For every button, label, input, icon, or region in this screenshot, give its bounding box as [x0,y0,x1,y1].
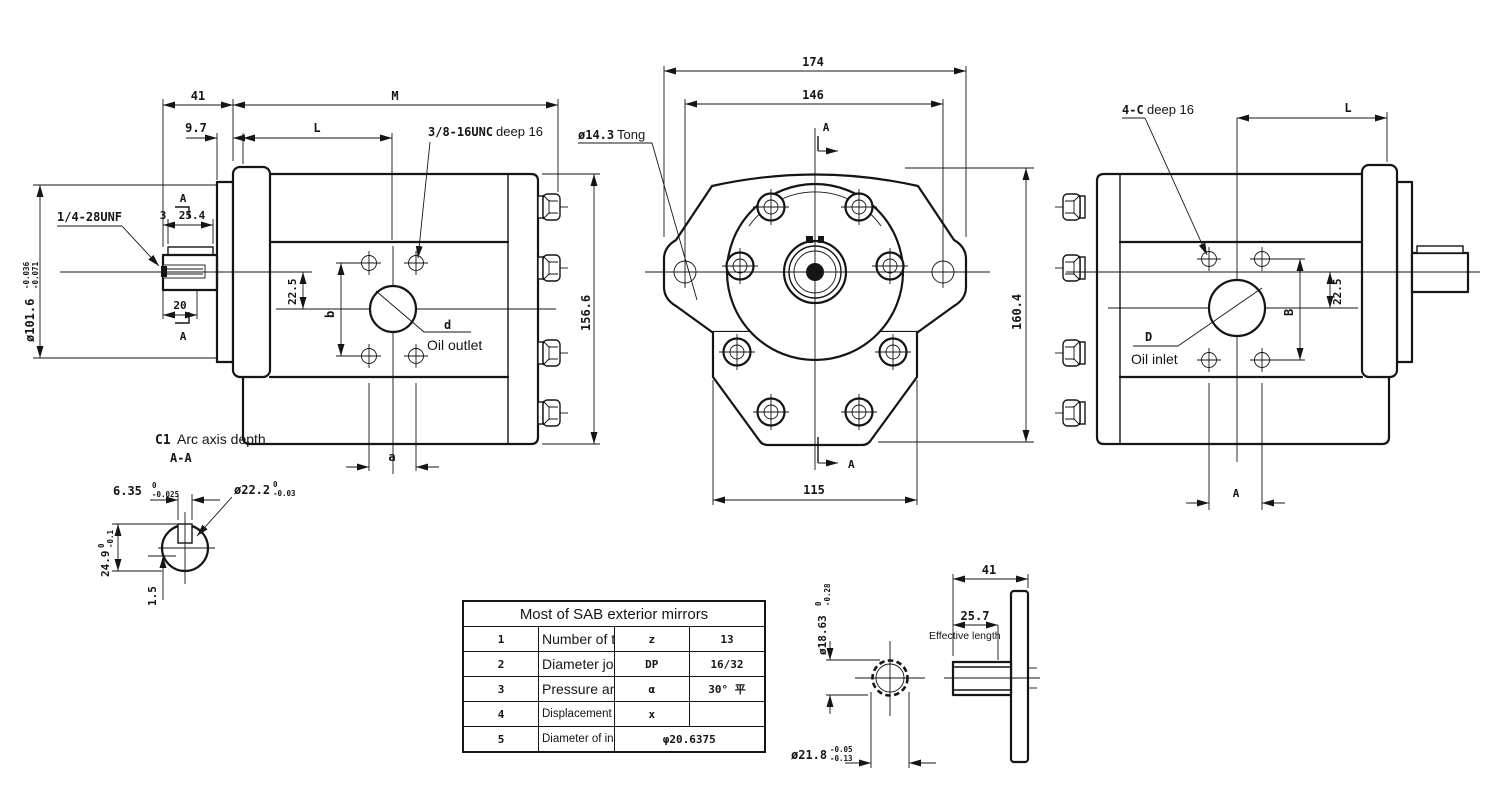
table-row: 3 Pressure angle α 30° 平 [463,677,765,702]
front-view: 174 146 115 160.4 ø14.3 Tong A A [578,55,1034,505]
row-name: Displacement coefficient [539,702,615,727]
dim-b: b [323,311,337,318]
dim-160-4: 160.4 [1010,294,1024,330]
dim-115: 115 [803,483,825,497]
svg-text:-0.036: -0.036 [22,261,31,289]
dim-25-4: 25.4 [179,209,206,222]
row-number: 5 [463,727,539,753]
section-a-top-front: A [823,121,830,134]
svg-text:22.5: 22.5 [286,279,299,306]
row-symbol: DP [614,652,690,677]
row-symbol: x [614,702,690,727]
section-a-top: A [180,192,187,205]
dim-overall-height: 24.9 0 -0.1 [97,529,115,577]
svg-text:B: B [1282,309,1296,316]
detail-subtitle: A-A [170,451,192,465]
svg-text:0: 0 [152,481,157,490]
svg-text:22.5: 22.5 [1331,279,1344,306]
spec-table-title-row: Most of SAB exterior mirrors [463,601,765,627]
svg-text:-0.05: -0.05 [830,745,853,754]
dim-41: 41 [191,89,205,103]
dim-spline-minor: ø18.63 0 -0.28 [814,583,832,655]
row-value [690,702,766,727]
port-ref-d: d [444,318,451,332]
dim-22-5-left: 22.5 [286,279,299,306]
dim-L-right: L [1344,101,1351,115]
row-number: 4 [463,702,539,727]
table-row: 1 Number of teeth z 13 [463,627,765,652]
row-value: 16/32 [690,652,766,677]
spec-table: Most of SAB exterior mirrors 1 Number of… [462,600,766,753]
row-number: 3 [463,677,539,702]
svg-text:0: 0 [814,601,823,606]
svg-text:0: 0 [273,480,278,489]
svg-text:160.4: 160.4 [1010,294,1024,330]
dim-20: 20 [173,299,186,312]
svg-text:ø22.2: ø22.2 [234,483,270,497]
dim-146: 146 [802,88,824,102]
svg-text:-0.025: -0.025 [152,490,179,499]
detail-title-c1: C1 [155,433,171,448]
svg-text:-0.071: -0.071 [31,261,40,289]
detail-title: Arc axis depth [177,431,266,447]
dim-L-left: L [313,121,320,135]
section-a-bottom: A [180,330,187,343]
effective-length-label: Effective length [929,630,1001,642]
row-name: Diameter joint [539,652,615,677]
svg-text:156.6: 156.6 [579,295,593,331]
dim-key-width: 6.35 0 -0.025 [113,481,179,499]
thread-unc-suffix: deep 16 [496,124,543,139]
spec-table-title: Most of SAB exterior mirrors [463,601,765,627]
table-row: 5 Diameter of indexing circle φ20.6375 [463,727,765,753]
row-name: Diameter of indexing circle [539,727,615,753]
row-name: Number of teeth [539,627,615,652]
dim-shaft-dia: ø22.2 0 -0.03 [234,480,296,498]
dim-25-7: 25.7 [961,609,990,623]
dim-pilot-dia: ø101.6 -0.036 -0.071 [22,261,40,342]
dim-3: 3 [160,209,167,222]
svg-text:-0.28: -0.28 [823,583,832,606]
mount-hole-dia: ø14.3 [578,128,614,142]
oil-inlet-label: Oil inlet [1131,351,1178,367]
svg-text:ø21.8: ø21.8 [791,748,827,762]
dim-key-height: 1.5 [146,586,159,606]
svg-text:24.9: 24.9 [99,551,112,578]
mount-hole-suffix: Tong [617,127,645,142]
svg-text:-0.1: -0.1 [106,529,115,548]
section-a-a-detail: C1 Arc axis depth A-A 6.35 0 -0.025 ø22.… [97,431,296,606]
dim-A-right: A [1233,487,1240,500]
row-value: 13 [690,627,766,652]
dim-spline-major: ø21.8 -0.05 -0.13 [791,745,853,763]
spline-detail: ø18.63 0 -0.28 ø21.8 -0.05 -0.13 41 25.7… [791,563,1040,768]
dim-B: B [1282,309,1296,316]
oil-outlet-label: Oil outlet [427,337,482,353]
dim-M: M [391,89,398,103]
row-name: Pressure angle [539,677,615,702]
bolt-thread-suffix: deep 16 [1147,102,1194,117]
section-a-bottom-front: A [848,458,855,471]
left-side-view: 41 M 9.7 L 3/8-16UNC deep 16 A A 1/4-28U… [22,89,600,474]
dim-156-6: 156.6 [579,295,593,331]
bolt-thread-label: 4-C [1122,103,1144,117]
svg-text:6.35: 6.35 [113,484,142,498]
row-number: 1 [463,627,539,652]
svg-text:-0.13: -0.13 [830,754,853,763]
table-row: 2 Diameter joint DP 16/32 [463,652,765,677]
thread-unf-label: 1/4-28UNF [57,210,122,224]
svg-text:ø18.63: ø18.63 [816,615,829,655]
svg-text:ø101.6: ø101.6 [23,299,37,342]
dim-174: 174 [802,55,824,69]
row-value: 30° 平 [690,677,766,702]
thread-unc-label: 3/8-16UNC [428,125,493,139]
svg-text:1.5: 1.5 [146,586,159,606]
port-ref-D: D [1145,330,1152,344]
dim-9-7: 9.7 [185,121,207,135]
dim-a: a [388,450,395,464]
table-row: 4 Displacement coefficient x [463,702,765,727]
svg-text:0: 0 [97,543,106,548]
right-side-view: 4-C deep 16 L B 22.5 D Oil inlet A [1055,101,1480,510]
row-number: 2 [463,652,539,677]
dim-22-5-right: 22.5 [1331,279,1344,306]
svg-text:-0.03: -0.03 [273,489,296,498]
row-value: φ20.6375 [614,727,765,753]
engineering-drawing: 41 M 9.7 L 3/8-16UNC deep 16 A A 1/4-28U… [0,0,1500,796]
dim-41-spline: 41 [982,563,996,577]
row-symbol: α [614,677,690,702]
svg-text:b: b [323,311,337,318]
row-symbol: z [614,627,690,652]
